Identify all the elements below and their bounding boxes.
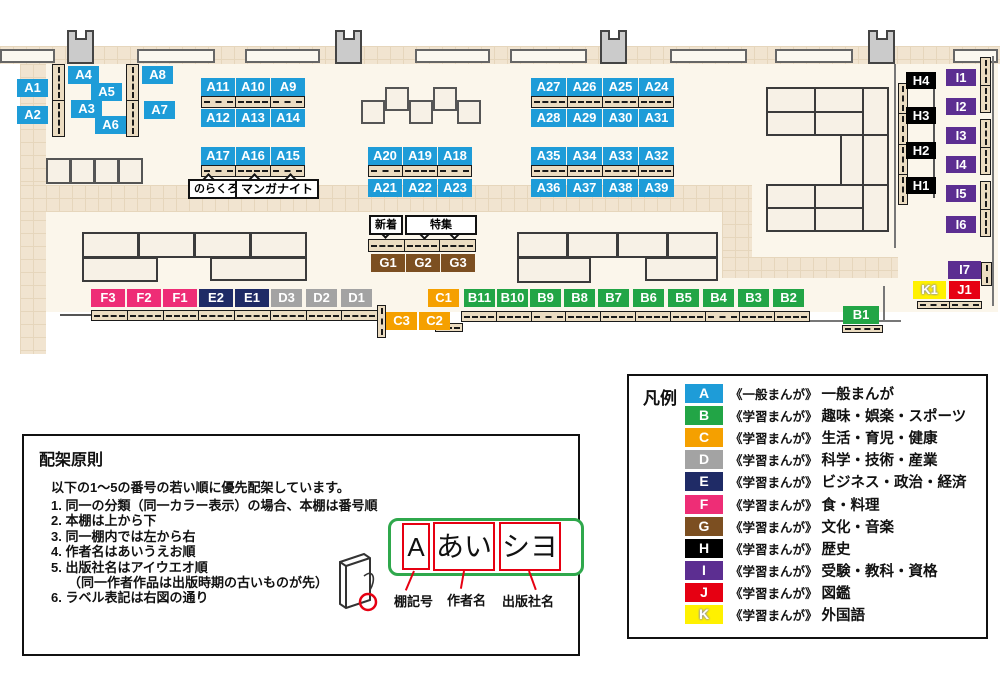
shelf-unit bbox=[52, 64, 65, 137]
legend-row: E 《学習まんが》 ビジネス・政治・経済 bbox=[685, 471, 967, 493]
shelf-label: A36 bbox=[531, 179, 566, 197]
shelf-unit bbox=[368, 165, 472, 177]
wall bbox=[992, 56, 994, 306]
shelf-label: C3 bbox=[386, 312, 417, 330]
callout-new-arrivals: 新着 bbox=[369, 215, 403, 235]
legend-series: 《学習まんが》 bbox=[730, 406, 818, 425]
window bbox=[775, 49, 853, 63]
shelf-unit bbox=[917, 301, 982, 309]
shelf-label: H4 bbox=[906, 72, 936, 89]
shelf-label: A5 bbox=[91, 83, 122, 101]
shelf-label: A38 bbox=[603, 179, 638, 197]
window bbox=[510, 49, 587, 63]
legend-series: 《一般まんが》 bbox=[730, 384, 818, 403]
shelf-label: A2 bbox=[17, 106, 48, 124]
shelf-label: B7 bbox=[598, 289, 629, 307]
legend-color-chip: F bbox=[685, 495, 723, 514]
shelf-block bbox=[862, 134, 889, 186]
shelf-label: A28 bbox=[531, 109, 566, 127]
shelf-label: B2 bbox=[773, 289, 804, 307]
shelf-label: E2 bbox=[199, 289, 233, 307]
legend-color-chip: D bbox=[685, 450, 723, 469]
shelf-label: C1 bbox=[428, 289, 459, 307]
pillar bbox=[67, 30, 94, 64]
shelf-block bbox=[766, 184, 816, 209]
shelf-label: D1 bbox=[341, 289, 372, 307]
shelf-block bbox=[840, 134, 864, 186]
legend-category: 食・料理 bbox=[822, 494, 880, 515]
shelf-label: A8 bbox=[142, 66, 173, 84]
shelf-block bbox=[814, 87, 864, 113]
legend-color-chip: K bbox=[685, 605, 723, 624]
principles-item: 6. ラベル表記は右図の通り bbox=[51, 590, 377, 605]
shelf-block bbox=[766, 207, 816, 232]
caption-shelf-code: 棚記号 bbox=[394, 591, 433, 610]
legend-category: 科学・技術・産業 bbox=[822, 449, 938, 470]
shelf-label: B3 bbox=[738, 289, 769, 307]
shelf-label: A33 bbox=[603, 147, 638, 165]
shelf-block bbox=[766, 111, 816, 136]
shelf-label: B9 bbox=[530, 289, 561, 307]
shelf-label: A9 bbox=[271, 78, 305, 96]
shelf-unit bbox=[377, 305, 386, 338]
legend-series: 《学習まんが》 bbox=[730, 605, 818, 624]
shelf-label: B10 bbox=[497, 289, 528, 307]
principles-item: 2. 本棚は上から下 bbox=[51, 513, 377, 528]
legend-row: A 《一般まんが》 一般まんが bbox=[685, 382, 967, 404]
shelf-block bbox=[617, 232, 668, 258]
window bbox=[0, 49, 55, 63]
principles-item-note: （同一作者作品は出版時期の古いものが先） bbox=[51, 575, 377, 590]
table bbox=[409, 100, 433, 124]
legend-row: J 《学習まんが》 図鑑 bbox=[685, 582, 967, 604]
shelf-unit bbox=[980, 119, 991, 175]
principles-intro: 以下の1～5の番号の若い順に優先配架しています。 bbox=[51, 477, 350, 496]
shelf-block bbox=[814, 184, 864, 209]
shelf-label: E1 bbox=[235, 289, 269, 307]
shelf-label: A21 bbox=[368, 179, 402, 197]
shelf-block bbox=[194, 232, 251, 258]
caption-author: 作者名 bbox=[447, 590, 486, 609]
legend-color-chip: E bbox=[685, 472, 723, 491]
window bbox=[245, 49, 320, 63]
shelf-unit bbox=[91, 310, 378, 321]
legend-category: 生活・育児・健康 bbox=[822, 427, 938, 448]
legend-color-chip: J bbox=[685, 583, 723, 602]
shelf-label: B1 bbox=[843, 306, 879, 324]
shelf-label: A29 bbox=[567, 109, 602, 127]
wall bbox=[883, 320, 901, 322]
shelf-label: A10 bbox=[236, 78, 270, 96]
shelf-label: F3 bbox=[91, 289, 125, 307]
principles-item: 1. 同一の分類（同一カラー表示）の場合、本棚は番号順 bbox=[51, 498, 377, 513]
shelf-label: H1 bbox=[906, 177, 936, 194]
legend-category: ビジネス・政治・経済 bbox=[822, 471, 967, 492]
legend-row: D 《学習まんが》 科学・技術・産業 bbox=[685, 449, 967, 471]
shelf-label: I5 bbox=[946, 185, 976, 202]
wall bbox=[883, 286, 885, 322]
table bbox=[385, 87, 409, 111]
shelf-label: I7 bbox=[948, 261, 981, 279]
legend-series: 《学習まんが》 bbox=[730, 539, 818, 558]
shelf-label: I6 bbox=[946, 216, 976, 233]
shelf-unit bbox=[981, 262, 992, 286]
shelf-block bbox=[138, 232, 195, 258]
legend-category: 図鑑 bbox=[822, 582, 851, 603]
shelf-unit bbox=[531, 165, 674, 177]
legend-series: 《学習まんが》 bbox=[730, 517, 818, 536]
shelf-unit bbox=[126, 64, 139, 137]
shelf-label: A13 bbox=[236, 109, 270, 127]
shelf-block bbox=[517, 232, 568, 258]
principles-items: 1. 同一の分類（同一カラー表示）の場合、本棚は番号順 2. 本棚は上から下 3… bbox=[51, 498, 377, 606]
shelf-block bbox=[250, 232, 307, 258]
shelf-label: A4 bbox=[68, 66, 99, 84]
shelf-unit bbox=[980, 181, 991, 237]
legend-row: C 《学習まんが》 生活・育児・健康 bbox=[685, 426, 967, 448]
table bbox=[457, 100, 481, 124]
shelf-label: F1 bbox=[163, 289, 197, 307]
shelf-label: A27 bbox=[531, 78, 566, 96]
shelf-unit bbox=[201, 96, 305, 108]
table bbox=[118, 158, 143, 184]
shelf-label: I4 bbox=[946, 156, 976, 173]
shelf-block bbox=[862, 184, 889, 232]
shelf-label: D2 bbox=[306, 289, 337, 307]
caption-publisher: 出版社名 bbox=[502, 591, 554, 610]
window bbox=[415, 49, 490, 63]
legend-series: 《学習まんが》 bbox=[730, 450, 818, 469]
shelf-label: A1 bbox=[17, 79, 48, 97]
shelf-block bbox=[862, 87, 889, 136]
label-shelf-code: A bbox=[402, 523, 430, 570]
legend-series: 《学習まんが》 bbox=[730, 495, 818, 514]
shelf-label: B11 bbox=[464, 289, 495, 307]
shelf-label: I2 bbox=[946, 98, 976, 115]
shelf-block bbox=[82, 257, 158, 282]
legend-color-chip: A bbox=[685, 384, 723, 403]
shelf-label: A23 bbox=[438, 179, 472, 197]
shelf-label: A32 bbox=[639, 147, 674, 165]
shelf-label: A19 bbox=[403, 147, 437, 165]
legend-category: 外国語 bbox=[822, 604, 866, 625]
legend-row: F 《学習まんが》 食・料理 bbox=[685, 493, 967, 515]
legend-series: 《学習まんが》 bbox=[730, 583, 818, 602]
shelf-block bbox=[210, 257, 307, 281]
legend-color-chip: G bbox=[685, 517, 723, 536]
shelf-unit bbox=[531, 96, 674, 108]
shelf-label: J1 bbox=[949, 281, 980, 299]
legend-row: I 《学習まんが》 受験・教科・資格 bbox=[685, 560, 967, 582]
shelf-label: A12 bbox=[201, 109, 235, 127]
shelf-label: A24 bbox=[639, 78, 674, 96]
shelf-block bbox=[814, 207, 864, 232]
shelf-block bbox=[814, 111, 864, 136]
shelf-label: C2 bbox=[419, 312, 450, 330]
shelf-unit bbox=[368, 239, 476, 252]
shelf-label: A35 bbox=[531, 147, 566, 165]
shelf-label: A11 bbox=[201, 78, 235, 96]
shelf-unit bbox=[842, 325, 883, 333]
shelf-label: A15 bbox=[271, 147, 305, 165]
shelf-label: A7 bbox=[144, 101, 175, 119]
legend-series: 《学習まんが》 bbox=[730, 472, 818, 491]
shelf-label: D3 bbox=[271, 289, 302, 307]
principles-item: 4. 作者名はあいうえお順 bbox=[51, 544, 377, 559]
shelf-label: I3 bbox=[946, 127, 976, 144]
shelf-label: I1 bbox=[946, 69, 976, 86]
shelf-label: A20 bbox=[368, 147, 402, 165]
shelf-label: A34 bbox=[567, 147, 602, 165]
principles-item: 3. 同一棚内では左から右 bbox=[51, 529, 377, 544]
shelf-label: B6 bbox=[633, 289, 664, 307]
shelf-label: A25 bbox=[603, 78, 638, 96]
table bbox=[361, 100, 385, 124]
shelf-label: A6 bbox=[95, 116, 126, 134]
shelf-block bbox=[645, 257, 718, 281]
legend-color-chip: B bbox=[685, 406, 723, 425]
shelf-label: K1 bbox=[913, 281, 946, 299]
shelf-label: A37 bbox=[567, 179, 602, 197]
pillar bbox=[335, 30, 362, 64]
shelf-label: A22 bbox=[403, 179, 437, 197]
principles-item: 5. 出版社名はアイウエオ順 bbox=[51, 560, 377, 575]
legend-title: 凡例 bbox=[643, 384, 677, 409]
legend-color-chip: H bbox=[685, 539, 723, 558]
shelf-block bbox=[517, 257, 591, 283]
legend-row: H 《学習まんが》 歴史 bbox=[685, 537, 967, 559]
shelf-label: H2 bbox=[906, 142, 936, 159]
principles-title: 配架原則 bbox=[39, 446, 103, 470]
legend-category: 歴史 bbox=[822, 538, 851, 559]
shelf-unit bbox=[461, 311, 810, 322]
pillar bbox=[868, 30, 895, 64]
legend-row: G 《学習まんが》 文化・音楽 bbox=[685, 515, 967, 537]
shelf-block bbox=[82, 232, 139, 258]
window bbox=[670, 49, 747, 63]
floor-map-page: A1 A2 A4 A5 A3 A6 A8 A7 A11 A10 A9 A12 A… bbox=[0, 0, 1000, 700]
label-publisher: シヨ bbox=[499, 522, 561, 571]
legend-rows: A 《一般まんが》 一般まんが B 《学習まんが》 趣味・娯楽・スポーツ C 《… bbox=[685, 382, 967, 626]
right-walkway-horizontal bbox=[722, 257, 898, 278]
book-icon bbox=[330, 548, 382, 617]
shelf-label: B5 bbox=[668, 289, 699, 307]
callout-feature: 特集 bbox=[405, 215, 477, 235]
shelf-unit bbox=[980, 57, 991, 113]
legend-category: 受験・教科・資格 bbox=[822, 560, 938, 581]
shelf-label: H3 bbox=[906, 107, 936, 124]
table bbox=[94, 158, 119, 184]
shelf-label: A18 bbox=[438, 147, 472, 165]
pillar bbox=[600, 30, 627, 64]
table bbox=[46, 158, 71, 184]
shelf-label: F2 bbox=[127, 289, 161, 307]
legend-series: 《学習まんが》 bbox=[730, 561, 818, 580]
shelf-label: B4 bbox=[703, 289, 734, 307]
label-author: あい bbox=[433, 522, 495, 571]
legend-row: B 《学習まんが》 趣味・娯楽・スポーツ bbox=[685, 404, 967, 426]
legend-category: 趣味・娯楽・スポーツ bbox=[822, 405, 967, 426]
legend-series: 《学習まんが》 bbox=[730, 428, 818, 447]
legend-panel: 凡例 A 《一般まんが》 一般まんが B 《学習まんが》 趣味・娯楽・スポーツ … bbox=[627, 374, 988, 639]
legend-color-chip: C bbox=[685, 428, 723, 447]
table bbox=[433, 87, 457, 111]
shelf-label: A39 bbox=[639, 179, 674, 197]
shelf-block bbox=[667, 232, 718, 258]
shelf-label: B8 bbox=[564, 289, 595, 307]
shelf-block bbox=[766, 87, 816, 113]
legend-category: 一般まんが bbox=[822, 383, 895, 404]
legend-color-chip: I bbox=[685, 561, 723, 580]
shelf-block bbox=[567, 232, 618, 258]
shelf-label: A14 bbox=[271, 109, 305, 127]
shelf-label: G3 bbox=[441, 254, 475, 272]
shelf-label: G2 bbox=[406, 254, 440, 272]
shelf-label: A30 bbox=[603, 109, 638, 127]
shelf-label: A31 bbox=[639, 109, 674, 127]
shelf-label: G1 bbox=[371, 254, 405, 272]
shelf-label: A26 bbox=[567, 78, 602, 96]
legend-row: K 《学習まんが》 外国語 bbox=[685, 604, 967, 626]
shelf-label: A17 bbox=[201, 147, 235, 165]
legend-category: 文化・音楽 bbox=[822, 516, 895, 537]
callout-manga-night: マンガナイト bbox=[235, 179, 319, 199]
wall bbox=[894, 64, 896, 248]
table bbox=[70, 158, 95, 184]
shelf-label: A16 bbox=[236, 147, 270, 165]
window bbox=[137, 49, 215, 63]
